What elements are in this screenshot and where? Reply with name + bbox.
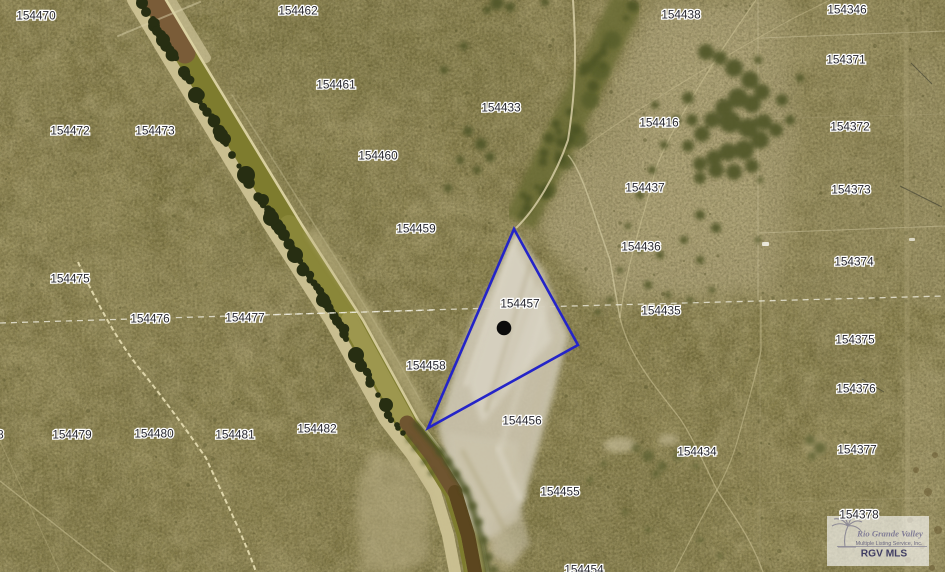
svg-text:154433: 154433 [481,101,521,115]
svg-text:154377: 154377 [837,443,876,457]
svg-text:154479: 154479 [52,428,91,442]
svg-text:154459: 154459 [396,222,435,236]
svg-text:154470: 154470 [16,9,56,23]
svg-text:154456: 154456 [502,414,542,428]
svg-text:Rio Grande Valley: Rio Grande Valley [856,529,923,539]
svg-text:154461: 154461 [316,78,355,92]
svg-text:154371: 154371 [826,53,865,67]
svg-text:154435: 154435 [641,304,681,318]
svg-text:154457: 154457 [500,297,539,311]
svg-text:154378: 154378 [839,508,879,522]
svg-text:154462: 154462 [278,4,317,18]
svg-text:154436: 154436 [621,240,661,254]
svg-text:154416: 154416 [639,116,679,130]
svg-text:154477: 154477 [225,311,264,325]
svg-text:154434: 154434 [677,445,717,459]
svg-text:154458: 154458 [406,359,446,373]
svg-text:154476: 154476 [130,312,170,326]
svg-text:154346: 154346 [827,3,867,17]
svg-text:154372: 154372 [830,120,869,134]
svg-text:154480: 154480 [134,427,174,441]
svg-text:154481: 154481 [215,428,254,442]
svg-text:154482: 154482 [297,422,336,436]
svg-text:RGV MLS: RGV MLS [861,549,908,560]
svg-text:154473: 154473 [135,124,175,138]
svg-text:154472: 154472 [50,124,89,138]
svg-text:154478: 154478 [0,428,4,442]
svg-text:154437: 154437 [625,181,664,195]
svg-text:154376: 154376 [836,382,876,396]
svg-text:154455: 154455 [540,485,580,499]
svg-text:154438: 154438 [661,8,701,22]
svg-text:154373: 154373 [831,183,871,197]
svg-text:154475: 154475 [50,272,90,286]
svg-text:154460: 154460 [358,149,398,163]
svg-text:154375: 154375 [835,333,875,347]
svg-text:154374: 154374 [834,255,874,269]
svg-text:154454: 154454 [564,563,604,572]
